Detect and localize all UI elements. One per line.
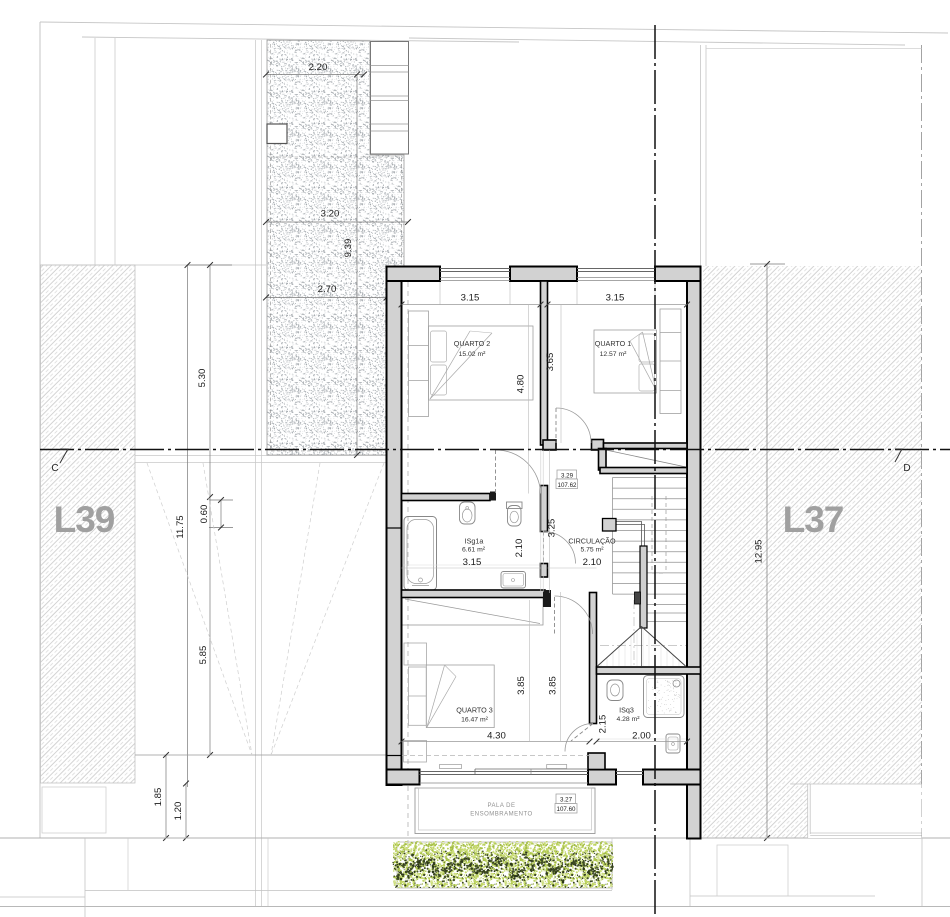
- svg-text:QUARTO 1: QUARTO 1: [595, 339, 631, 348]
- svg-text:9.39: 9.39: [343, 239, 354, 258]
- svg-text:4.28 m²: 4.28 m²: [616, 716, 640, 723]
- svg-text:1.20: 1.20: [173, 802, 184, 821]
- svg-text:ENSOMBRAMENTO: ENSOMBRAMENTO: [470, 812, 532, 818]
- svg-text:3.15: 3.15: [461, 293, 480, 304]
- svg-text:2.20: 2.20: [309, 62, 328, 73]
- svg-text:L37: L37: [783, 499, 844, 540]
- svg-text:12.57 m²: 12.57 m²: [600, 351, 628, 358]
- svg-text:L39: L39: [54, 499, 115, 540]
- svg-text:12.95: 12.95: [754, 539, 765, 563]
- svg-text:3.65: 3.65: [545, 353, 556, 372]
- svg-text:2.70: 2.70: [318, 284, 337, 295]
- svg-text:PALA DE: PALA DE: [487, 803, 515, 809]
- svg-text:0.60: 0.60: [199, 505, 210, 524]
- svg-text:1.85: 1.85: [153, 788, 164, 807]
- svg-text:4.80: 4.80: [516, 375, 527, 394]
- svg-text:QUARTO 2: QUARTO 2: [454, 339, 490, 348]
- svg-text:D: D: [903, 463, 910, 474]
- svg-text:4.30: 4.30: [487, 731, 506, 742]
- svg-text:QUARTO 3: QUARTO 3: [456, 706, 492, 715]
- svg-text:3.20: 3.20: [321, 209, 340, 220]
- svg-text:11.75: 11.75: [175, 515, 186, 538]
- svg-text:3.15: 3.15: [463, 557, 482, 568]
- svg-text:5.85: 5.85: [198, 646, 209, 665]
- svg-text:CIRCULAÇÃO: CIRCULAÇÃO: [568, 537, 616, 546]
- svg-text:3.27: 3.27: [560, 797, 573, 804]
- svg-text:2.10: 2.10: [514, 539, 525, 558]
- svg-text:16.47 m²: 16.47 m²: [461, 717, 489, 724]
- svg-text:15.02 m²: 15.02 m²: [459, 351, 487, 358]
- svg-text:3.29: 3.29: [561, 473, 574, 480]
- svg-text:C: C: [51, 463, 58, 474]
- svg-text:ISg1a: ISg1a: [465, 537, 484, 546]
- svg-text:107.60: 107.60: [557, 806, 576, 813]
- svg-text:107.62: 107.62: [558, 482, 577, 489]
- svg-text:6.61 m²: 6.61 m²: [462, 547, 486, 554]
- svg-text:3.85: 3.85: [548, 676, 559, 695]
- svg-text:5.30: 5.30: [197, 369, 208, 388]
- svg-text:3.25: 3.25: [547, 519, 558, 538]
- svg-text:3.85: 3.85: [516, 676, 527, 695]
- svg-text:2.15: 2.15: [598, 715, 609, 734]
- svg-text:3.15: 3.15: [606, 293, 625, 304]
- svg-text:2.10: 2.10: [583, 557, 602, 568]
- svg-text:5.75 m²: 5.75 m²: [580, 547, 604, 554]
- svg-text:2.00: 2.00: [632, 731, 651, 742]
- svg-text:ISq3: ISq3: [619, 706, 634, 715]
